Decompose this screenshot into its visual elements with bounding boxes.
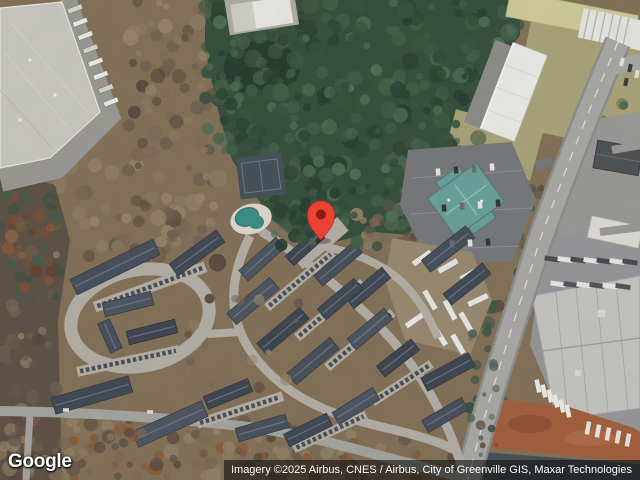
- attribution-text: Imagery ©2025 Airbus, CNES / Airbus, Cit…: [231, 464, 632, 476]
- satellite-imagery[interactable]: [0, 0, 640, 480]
- attribution-bar: Imagery ©2025 Airbus, CNES / Airbus, Cit…: [224, 460, 640, 480]
- google-logo[interactable]: Google: [8, 451, 72, 473]
- map-canvas[interactable]: Google Imagery ©2025 Airbus, CNES / Airb…: [0, 0, 640, 480]
- pin-shadow: [315, 238, 331, 244]
